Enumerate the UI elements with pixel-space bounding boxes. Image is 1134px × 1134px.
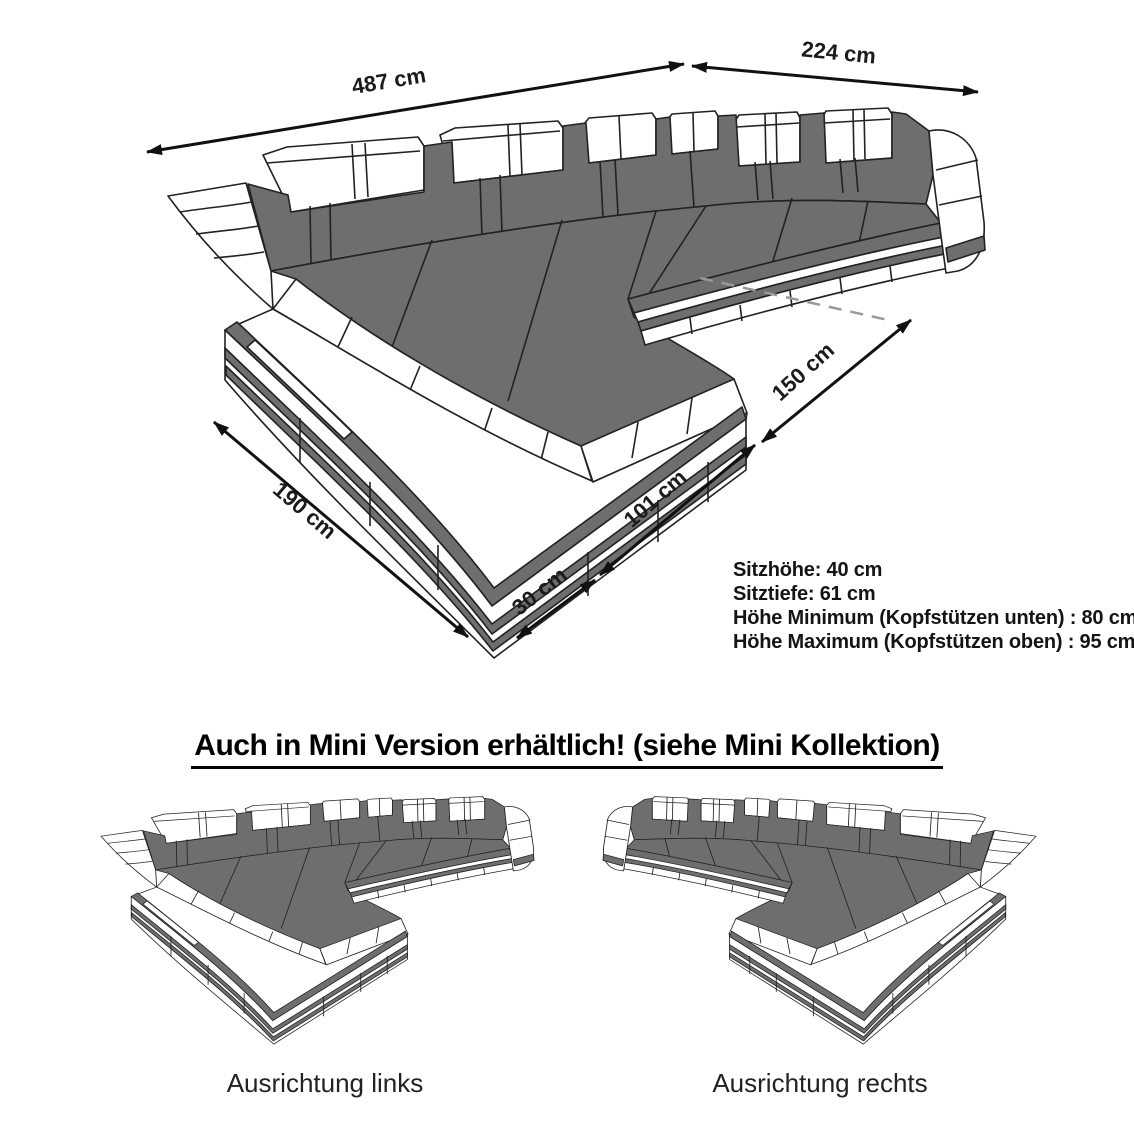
specs-block: Sitzhöhe: 40 cm Sitztiefe: 61 cm Höhe Mi… bbox=[733, 558, 1134, 654]
label-right-width: 224 cm bbox=[800, 36, 877, 68]
label-right-depth: 150 cm bbox=[767, 337, 839, 406]
sofa-dimension-diagram: 487 cm 224 cm 190 cm 30 cm 101 cm 150 cm… bbox=[0, 0, 1134, 1134]
arrow-right-width bbox=[692, 66, 978, 92]
mini-label-left: Ausrichtung links bbox=[165, 1068, 485, 1099]
label-back-width: 487 cm bbox=[350, 62, 428, 99]
mini-sofa-right bbox=[603, 797, 1036, 1045]
mini-label-right: Ausrichtung rechts bbox=[660, 1068, 980, 1099]
spec-line-height-min: Höhe Minimum (Kopfstützen unten) : 80 cm bbox=[733, 606, 1134, 630]
mini-section-heading-wrap: Auch in Mini Version erhältlich! (siehe … bbox=[0, 729, 1134, 769]
mini-section-heading: Auch in Mini Version erhältlich! (siehe … bbox=[191, 729, 942, 769]
mini-sofa-left bbox=[101, 797, 534, 1045]
spec-line-height-max: Höhe Maximum (Kopfstützen oben) : 95 cm bbox=[733, 630, 1134, 654]
spec-line-seat-height: Sitzhöhe: 40 cm bbox=[733, 558, 1134, 582]
spec-line-seat-depth: Sitztiefe: 61 cm bbox=[733, 582, 1134, 606]
